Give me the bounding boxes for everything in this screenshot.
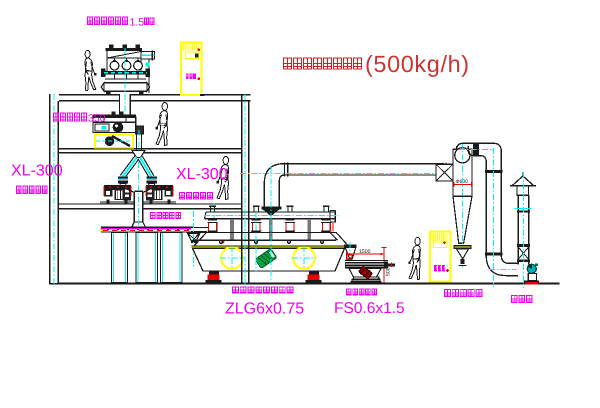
svg-text:1500: 1500 [359, 249, 371, 255]
svg-text:350: 350 [88, 113, 106, 125]
svg-text:XL-300: XL-300 [11, 163, 63, 180]
svg-text:FS0.6x1.5: FS0.6x1.5 [334, 300, 405, 317]
svg-text:Φ600: Φ600 [456, 179, 469, 185]
svg-text:XL-300: XL-300 [176, 166, 228, 183]
svg-text:(500kg/h): (500kg/h) [365, 51, 470, 77]
svg-text:500: 500 [386, 267, 392, 276]
svg-text:1.5: 1.5 [130, 17, 145, 29]
svg-text:ZLG6x0.75: ZLG6x0.75 [225, 301, 304, 318]
